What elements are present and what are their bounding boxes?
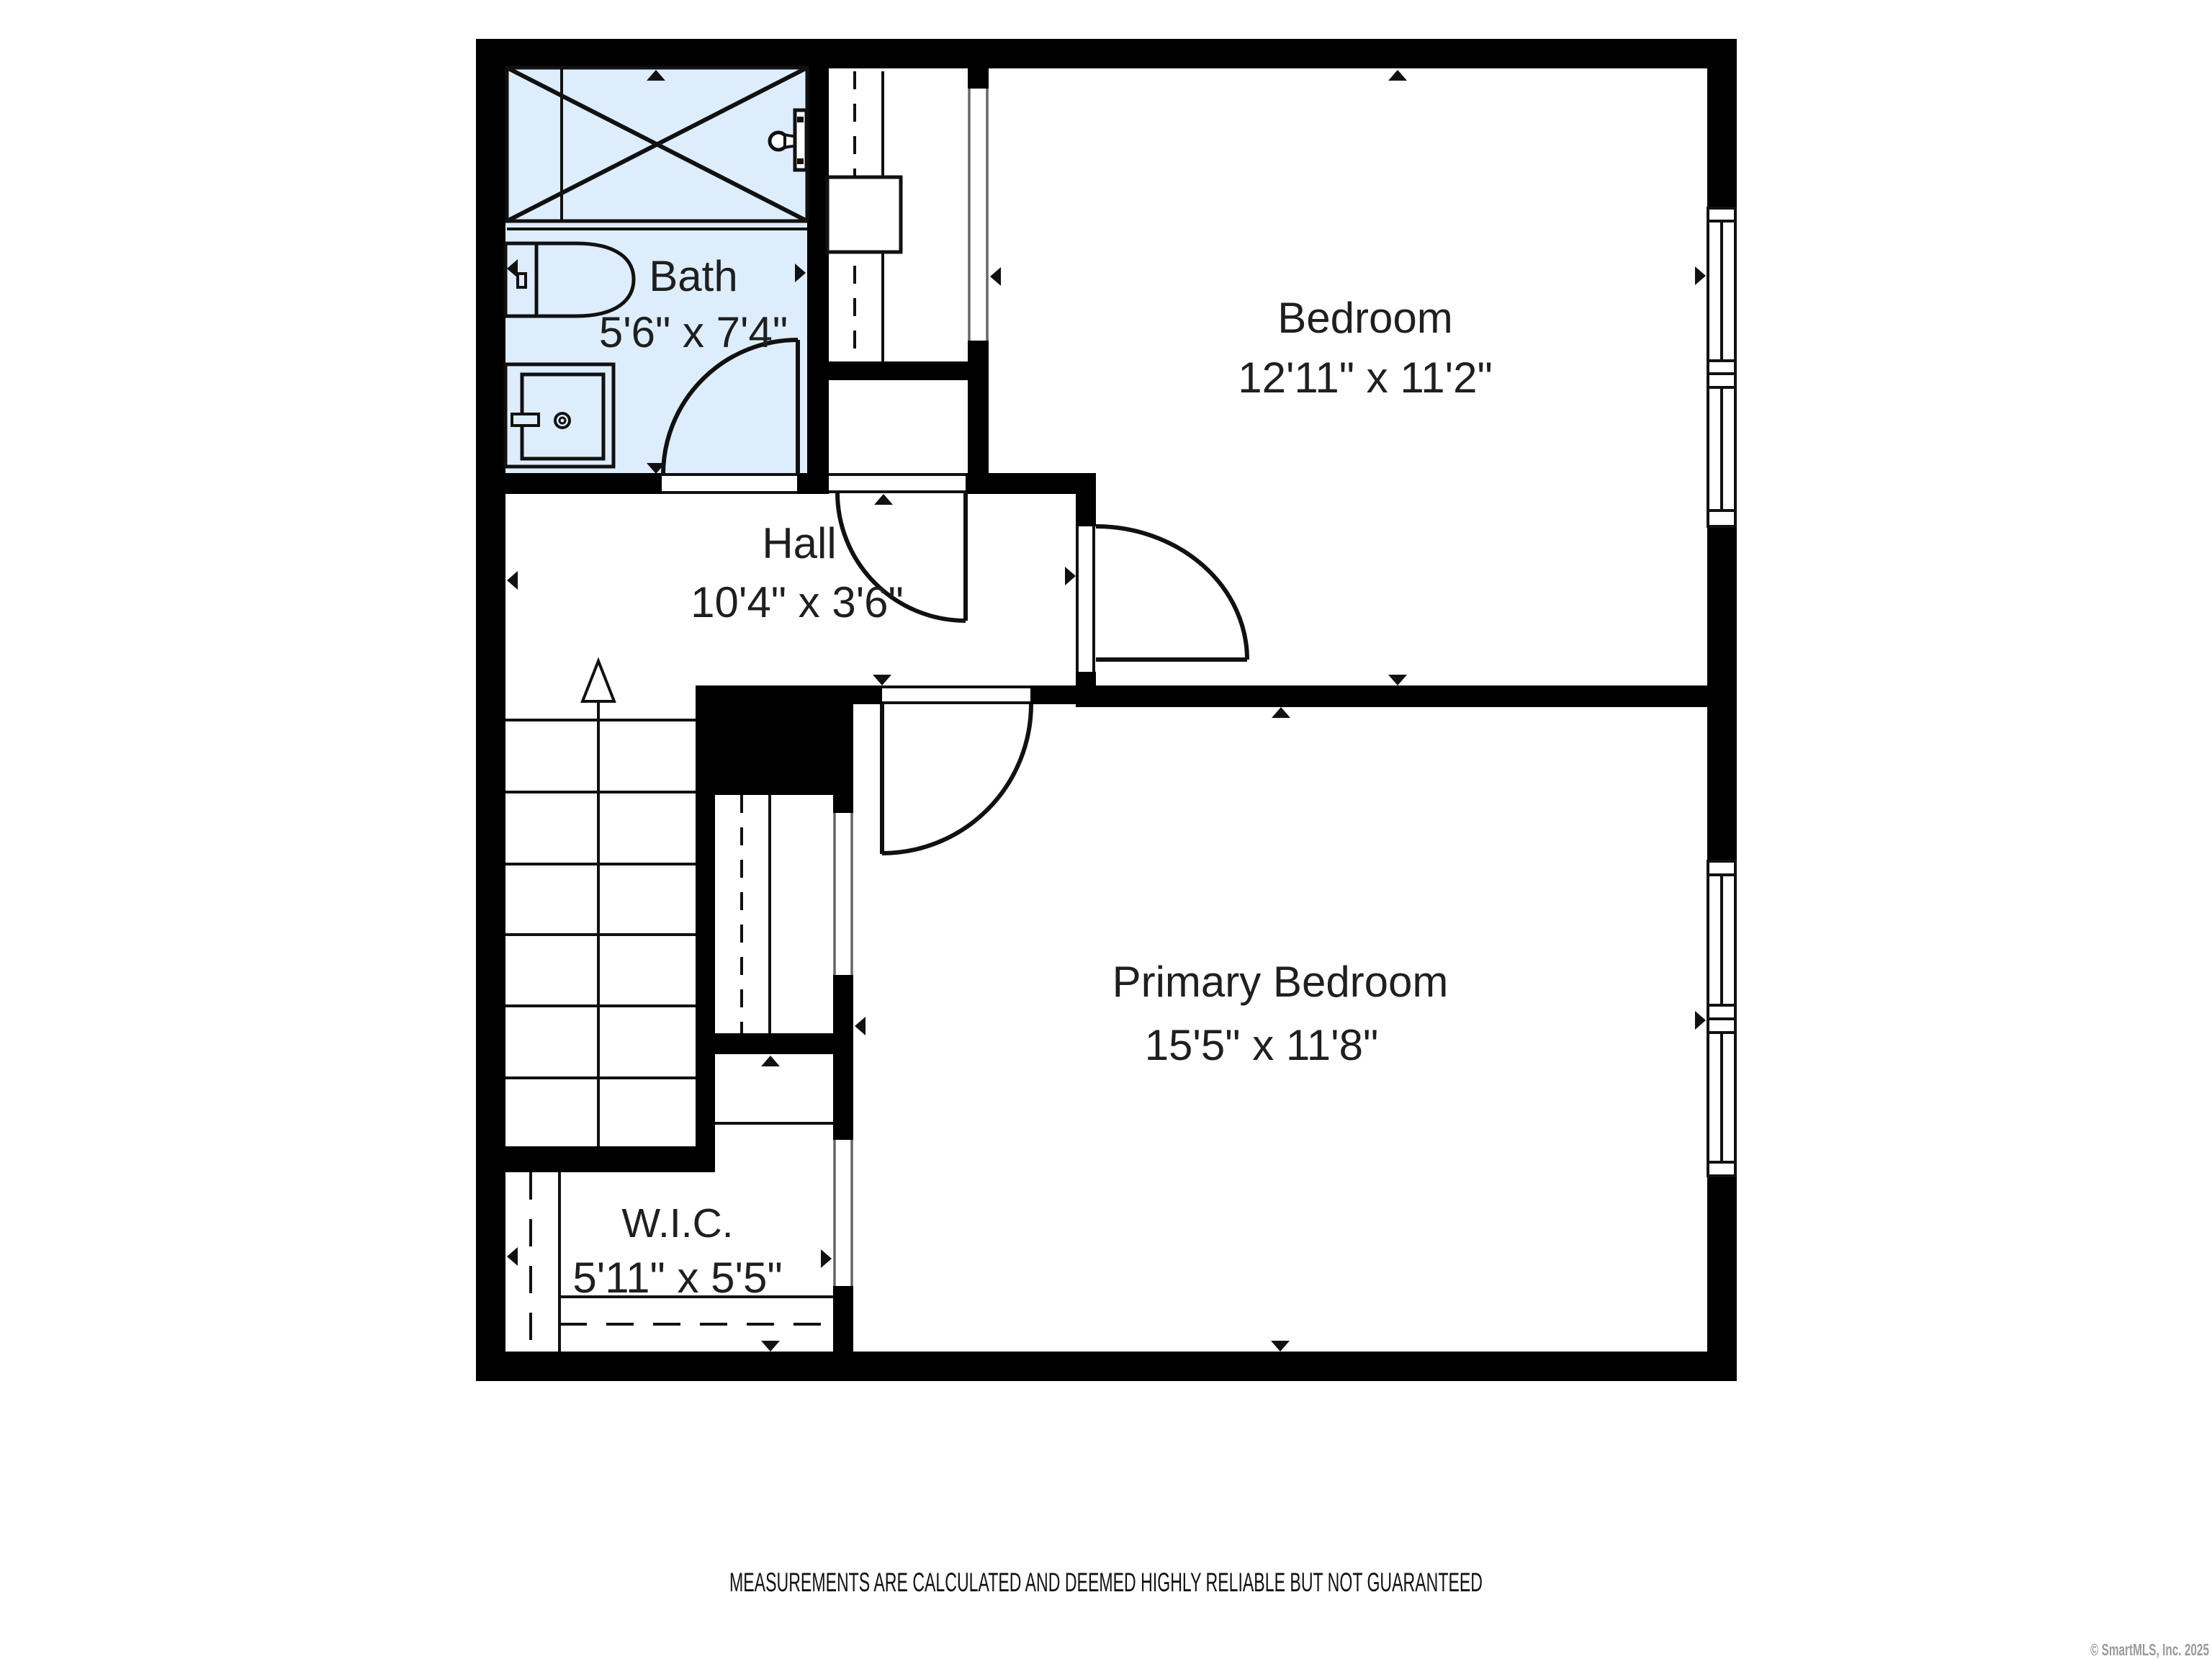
svg-text:Primary Bedroom: Primary Bedroom	[1112, 958, 1449, 1006]
svg-text:12'11" x 11'2": 12'11" x 11'2"	[1238, 354, 1493, 402]
svg-text:Hall: Hall	[762, 519, 836, 567]
svg-text:MEASUREMENTS ARE CALCULATED AN: MEASUREMENTS ARE CALCULATED AND DEEMED H…	[729, 1568, 1483, 1597]
svg-text:10'4" x 3'6": 10'4" x 3'6"	[691, 578, 904, 626]
svg-text:15'5" x 11'8": 15'5" x 11'8"	[1145, 1021, 1379, 1069]
svg-text:Bedroom: Bedroom	[1277, 294, 1452, 342]
svg-text:© SmartMLS, Inc. 2025: © SmartMLS, Inc. 2025	[2090, 1640, 2209, 1659]
svg-text:5'6" x 7'4": 5'6" x 7'4"	[599, 308, 788, 356]
svg-text:Bath: Bath	[649, 252, 737, 300]
svg-text:5'11" x 5'5": 5'11" x 5'5"	[572, 1254, 782, 1302]
svg-text:W.I.C.: W.I.C.	[621, 1200, 733, 1246]
